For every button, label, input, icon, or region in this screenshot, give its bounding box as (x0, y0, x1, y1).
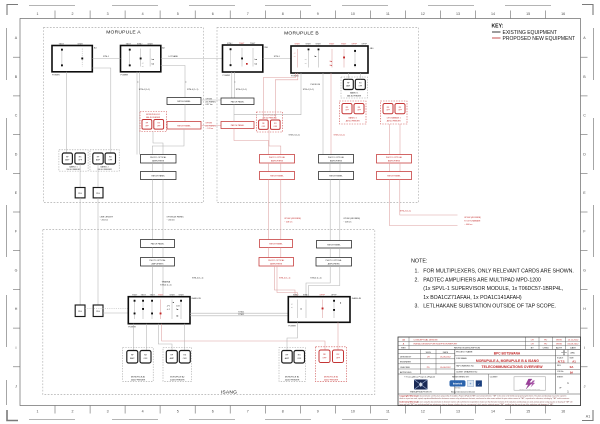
svg-text:12: 12 (421, 12, 425, 16)
svg-text:05-08-2012: 05-08-2012 (440, 357, 451, 359)
svg-text:6: 6 (212, 12, 214, 16)
svg-text:4B0: 4B0 (370, 48, 374, 50)
svg-text:PATCH PANEL: PATCH PANEL (177, 100, 191, 103)
svg-text:J: J (15, 385, 17, 389)
svg-text:C: C (15, 114, 18, 118)
svg-text:+↓: +↓ (291, 306, 293, 309)
svg-text:E: E (583, 191, 586, 195)
svg-text:3: 3 (107, 12, 109, 16)
svg-text:13: 13 (456, 410, 460, 414)
svg-text:DATE: DATE (570, 347, 576, 350)
svg-text:11: 11 (386, 410, 390, 414)
svg-text:10: 10 (351, 410, 355, 414)
svg-text:PATCH PANEL: PATCH PANEL (327, 244, 341, 247)
svg-text:11: 11 (386, 12, 390, 16)
svg-text:DESIGN BY: DESIGN BY (400, 357, 412, 359)
svg-text:BANKO 2: BANKO 2 (100, 165, 108, 168)
svg-text:AMPLIFIERS: AMPLIFIERS (328, 262, 341, 265)
svg-text:05-08-2012: 05-08-2012 (440, 367, 451, 369)
svg-text:MORUPULE B: MORUPULE B (284, 31, 319, 37)
svg-text:8: 8 (282, 12, 284, 16)
svg-text:LETLHAKANE SUBSTATION OUTSIDE: LETLHAKANE SUBSTATION OUTSIDE OF TAP SCO… (423, 303, 556, 309)
svg-text:PLE: PLE (96, 311, 100, 313)
svg-text:POWER: POWER (52, 75, 60, 77)
svg-text:Moody International Certificat: Moody International Certification (451, 390, 475, 393)
svg-text:ISANG 2B: ISANG 2B (192, 297, 202, 300)
svg-text:Indemnity Warning: Indemnity Warning (400, 401, 419, 404)
svg-text:BPC BOTSWANA: BPC BOTSWANA (494, 351, 521, 355)
svg-text:+↓: +↓ (142, 65, 144, 68)
svg-text:STM#: STM# (303, 294, 309, 296)
svg-text:STM-4 (1+1): STM-4 (1+1) (187, 89, 199, 91)
svg-text:7: 7 (247, 410, 249, 414)
svg-text:8: 8 (282, 410, 284, 414)
svg-text:THABWA: THABWA (162, 281, 171, 284)
svg-text:E: E (15, 191, 18, 195)
svg-text:B: B (15, 75, 18, 79)
svg-text:PD: PD (544, 344, 547, 346)
svg-text:STM#: STM# (227, 43, 233, 45)
svg-text:AMP: AMP (65, 159, 70, 162)
svg-text:DATE: DATE (443, 351, 449, 354)
svg-text:+↓: +↓ (305, 62, 307, 65)
svg-text:NOTE:: NOTE: (411, 259, 427, 265)
svg-text:MORUPULE B1: MORUPULE B1 (285, 377, 300, 379)
svg-text:PD: PD (544, 339, 547, 341)
svg-text:(MM): (MM) (570, 352, 575, 354)
svg-text:J: J (584, 385, 586, 389)
svg-text:2: 2 (72, 12, 74, 16)
svg-text:+↓: +↓ (305, 58, 307, 61)
svg-text:STM#: STM# (78, 43, 84, 45)
svg-text:ENGINEER: ENGINEER (400, 362, 411, 364)
svg-text:0A: 0A (570, 370, 573, 374)
svg-text:PATCH PANEL: PATCH PANEL (387, 175, 401, 178)
svg-text:200 4U FEEDER: 200 4U FEEDER (97, 169, 112, 171)
svg-text:MORUPULE A1: MORUPULE A1 (131, 376, 146, 379)
svg-text:STM-4 (1+1): STM-4 (1+1) (160, 285, 172, 287)
svg-text:LOTSANE: LOTSANE (169, 55, 179, 58)
svg-text:D: D (583, 152, 586, 156)
svg-text:JOB NAME:: JOB NAME: (456, 357, 468, 360)
svg-text:BANKO 1: BANKO 1 (69, 165, 77, 168)
svg-text:16: 16 (561, 12, 565, 16)
svg-text:BANKO 1: BANKO 1 (350, 92, 358, 95)
svg-text:AMPLIFIERS: AMPLIFIERS (152, 159, 165, 162)
svg-text:LINE LENGTH: LINE LENGTH (100, 216, 114, 218)
svg-text:9: 9 (317, 410, 319, 414)
svg-text:OPTP: OPTP (320, 294, 326, 296)
svg-text:FOR MULTIPLEXERS, ONLY RELEVAN: FOR MULTIPLEXERS, ONLY RELEVANT CARDS AR… (423, 269, 574, 275)
svg-text:STM-4 (1+1): STM-4 (1+1) (334, 134, 346, 136)
svg-text:C: C (583, 114, 586, 118)
svg-text:STM-1: STM-1 (274, 56, 281, 58)
svg-text:(36 FIBRE): (36 FIBRE) (206, 101, 216, 103)
svg-text:APPROVED: APPROVED (400, 371, 412, 374)
svg-text:14: 14 (491, 12, 495, 16)
svg-text:TSGT: TSGT (329, 44, 335, 46)
svg-text:REGISTERED BY:: REGISTERED BY: (452, 376, 470, 378)
svg-text:TRANS-AFRICA PROJECTS: TRANS-AFRICA PROJECTS (410, 390, 433, 393)
svg-text:ISO 9001: ISO 9001 (455, 388, 461, 390)
svg-text:A1: A1 (586, 415, 590, 419)
svg-text:~ 218 km: ~ 218 km (343, 221, 352, 223)
svg-text:PATCH PANEL: PATCH PANEL (177, 124, 191, 127)
svg-text:(1x SPVL-1 SUPERVISOR MODULE,: (1x SPVL-1 SUPERVISOR MODULE, 1x T06DC57… (423, 286, 563, 292)
svg-text:I: I (584, 346, 585, 350)
svg-text:REVISION DESCRIPTION: REVISION DESCRIPTION (454, 348, 480, 350)
svg-text:400kV FEEDER: 400kV FEEDER (131, 380, 146, 382)
svg-text:5: 5 (177, 12, 179, 16)
svg-text:TSGT: TSGT (132, 294, 138, 296)
svg-text:B: B (583, 75, 586, 79)
svg-text:PHOTO OPTICAL: PHOTO OPTICAL (326, 259, 343, 262)
svg-text:STM-4 (1+1): STM-4 (1+1) (139, 89, 151, 91)
svg-text:TO LETLHAKANE: TO LETLHAKANE (464, 219, 481, 222)
svg-text:CLIENT:: CLIENT: (490, 377, 499, 379)
svg-text:~ 400 km: ~ 400 km (464, 224, 473, 226)
svg-text:G: G (583, 268, 586, 272)
svg-text:D: D (15, 152, 18, 156)
svg-text:7: 7 (247, 12, 249, 16)
svg-text:TELECOMMUNICATIONS OVERVIEW: TELECOMMUNICATIONS OVERVIEW (482, 364, 543, 369)
svg-text:TAP DRAWING No:: TAP DRAWING No: (456, 364, 475, 367)
svg-text:STM-4 (1+1): STM-4 (1+1) (310, 278, 322, 280)
svg-text:✓: ✓ (478, 383, 480, 386)
svg-text:CHECKED: CHECKED (400, 367, 411, 369)
svg-text:WDW: WDW (556, 339, 563, 341)
svg-text:OPTP: OPTP (362, 44, 368, 46)
svg-text:POWER: POWER (288, 325, 296, 327)
svg-text:AMP: AMP (285, 357, 290, 360)
svg-text:1: 1 (37, 410, 39, 414)
svg-text:400kV FEEDER: 400kV FEEDER (170, 380, 185, 382)
svg-text:STM-4 (1+1): STM-4 (1+1) (279, 278, 291, 280)
svg-text:6: 6 (212, 410, 214, 414)
svg-text:OPGW (48 FIBRE): OPGW (48 FIBRE) (464, 217, 481, 219)
svg-text:JOB No:: JOB No: (557, 371, 564, 373)
svg-text:POWER: POWER (121, 75, 129, 77)
svg-text:PLE: PLE (96, 193, 100, 195)
svg-text:STM-1: STM-1 (238, 314, 245, 316)
svg-text:STM#: STM# (137, 43, 143, 45)
svg-text:MORUPULE A 2: MORUPULE A 2 (263, 114, 277, 117)
svg-text:POWER: POWER (223, 75, 231, 77)
svg-text:F: F (583, 230, 586, 234)
svg-text:OPGW: OPGW (206, 123, 212, 125)
svg-text:+↓: +↓ (294, 55, 296, 58)
svg-text:PATCH PANEL: PATCH PANEL (269, 243, 283, 246)
svg-text:A: A (15, 36, 18, 40)
svg-text:PLE: PLE (78, 193, 82, 195)
svg-text:AM 4U FEEDER: AM 4U FEEDER (346, 119, 361, 122)
svg-text:OPGW (48 FIBRE): OPGW (48 FIBRE) (284, 218, 301, 220)
svg-text:CHKD: CHKD (543, 348, 550, 350)
svg-text:9: 9 (317, 12, 319, 16)
svg-text:PHOTO OPTICAL: PHOTO OPTICAL (149, 259, 166, 262)
svg-text:PLE: PLE (78, 311, 82, 313)
svg-text:MORUPULE B 1: MORUPULE B 1 (146, 114, 160, 116)
svg-text:TSGT: TSGT (59, 43, 65, 45)
svg-text:STM#: STM# (179, 294, 185, 296)
svg-text:MORUPULE A2: MORUPULE A2 (170, 376, 185, 379)
svg-text:TSGT: TSGT (150, 294, 156, 296)
svg-text:MORUPULE B2: MORUPULE B2 (324, 377, 339, 379)
svg-text:PATCH PANEL: PATCH PANEL (270, 175, 284, 178)
svg-text:STM#: STM# (148, 43, 154, 45)
svg-text:AMP: AMP (170, 357, 175, 360)
svg-text:OPTP: OPTP (352, 44, 358, 46)
svg-text:1x BOA1CZ71AFAH, 1x POA1C141AF: 1x BOA1CZ71AFAH, 1x POA1C141AFAH) (423, 295, 522, 301)
svg-text:MORUPULE A, MORUPULE B & ISANG: MORUPULE A, MORUPULE B & ISANG (476, 358, 539, 363)
svg-text:A1: A1 (572, 359, 576, 363)
svg-text:AMPLIFIERS: AMPLIFIERS (271, 159, 284, 162)
svg-text:STM-4 (1+1): STM-4 (1+1) (303, 89, 315, 91)
svg-text:13: 13 (456, 12, 460, 16)
svg-text:TSGT: TSGT (141, 294, 147, 296)
svg-text:PATCH PANEL: PATCH PANEL (151, 175, 165, 178)
svg-text:AMP: AMP (130, 357, 135, 360)
svg-text:G: G (15, 268, 18, 272)
svg-text:ISANG 4B: ISANG 4B (352, 297, 362, 300)
svg-text:5: 5 (177, 410, 179, 414)
svg-text:PROPOSED NEW EQUIPMENT: PROPOSED NEW EQUIPMENT (503, 36, 576, 42)
svg-text:PHOTO OPTICAL: PHOTO OPTICAL (150, 156, 167, 159)
svg-text:TSGT: TSGT (239, 43, 245, 45)
svg-text:✈: ✈ (470, 383, 472, 386)
svg-text:LH: LH (531, 339, 534, 341)
svg-text:ISANG: ISANG (221, 390, 237, 396)
svg-text:AUTH: AUTH (556, 347, 562, 350)
svg-text:LH: LH (531, 344, 534, 346)
svg-text:+↓: +↓ (142, 62, 144, 65)
svg-text:4: 4 (142, 410, 144, 414)
svg-text:OPTP: OPTP (331, 294, 337, 296)
svg-text:A3: A3 (94, 47, 97, 50)
svg-text:10: 10 (351, 12, 355, 16)
svg-text:A2: A2 (162, 47, 165, 50)
svg-text:CONCEPTUAL DESIGN: CONCEPTUAL DESIGN (414, 338, 438, 341)
svg-text:PHOTO OPTICAL: PHOTO OPTICAL (269, 156, 286, 159)
svg-text:1.: 1. (415, 269, 419, 275)
svg-text:CLIENT DRAWING No:: CLIENT DRAWING No: (456, 371, 478, 374)
svg-text:~ 200 km: ~ 200 km (167, 220, 176, 222)
svg-text:MORUPULE A: MORUPULE A (106, 30, 141, 36)
svg-text:AMPLIFIERS: AMPLIFIERS (270, 262, 283, 265)
svg-text:~ 218 km: ~ 218 km (284, 221, 293, 223)
svg-text:STM-4 (1+1): STM-4 (1+1) (289, 134, 301, 136)
svg-text:16: 16 (561, 410, 565, 414)
svg-text:STM#: STM# (293, 294, 299, 296)
svg-text:PATCH PANEL: PATCH PANEL (151, 243, 165, 246)
svg-text:STM-1: STM-1 (238, 311, 245, 313)
svg-text:14.11.2012: 14.11.2012 (568, 339, 580, 341)
svg-text:PHOTO OPTICAL: PHOTO OPTICAL (386, 156, 403, 159)
svg-text:200 4U FEEDER: 200 4U FEEDER (66, 169, 81, 171)
svg-text:1: 1 (37, 12, 39, 16)
svg-text:PHOTO OPTICAL: PHOTO OPTICAL (328, 156, 345, 159)
svg-text:STM#: STM# (316, 44, 322, 46)
svg-text:~ 200 km: ~ 200 km (100, 220, 109, 222)
svg-text:WDW: WDW (556, 344, 563, 346)
svg-text:AMPLIFIERS: AMPLIFIERS (330, 159, 343, 162)
svg-text:400kV FEEDER: 400kV FEEDER (324, 380, 339, 382)
svg-text:TSGT: TSGT (158, 294, 164, 296)
svg-text:STM-1: STM-1 (103, 56, 110, 58)
svg-text:TSGT: TSGT (250, 43, 256, 45)
svg-text:400kV FEEDER: 400kV FEEDER (285, 380, 300, 382)
svg-text:2.: 2. (415, 277, 419, 283)
svg-text:STM-4 (1+1): STM-4 (1+1) (400, 211, 412, 213)
svg-text:SIGN: SIGN (426, 352, 432, 354)
svg-text:INITIAL DESIGN FOR INCEPTION R: INITIAL DESIGN FOR INCEPTION REPORT (414, 343, 458, 346)
svg-text:KEY:: KEY: (492, 23, 504, 29)
svg-text:3.: 3. (415, 303, 419, 309)
svg-text:15: 15 (526, 12, 530, 16)
svg-text:H: H (583, 307, 586, 311)
svg-text:TSGT: TSGT (341, 44, 347, 46)
svg-text:STM#: STM# (295, 44, 301, 46)
svg-text:STM#: STM# (306, 44, 312, 46)
svg-text:AMPLIFIERS: AMPLIFIERS (152, 262, 165, 265)
svg-text:3: 3 (107, 410, 109, 414)
svg-text:05.08.2012: 05.08.2012 (568, 344, 580, 346)
svg-text:PHOKOJE: PHOKOJE (311, 84, 321, 86)
svg-text:AM 4U FEEDER: AM 4U FEEDER (146, 116, 161, 119)
svg-text:PATCH PANEL: PATCH PANEL (329, 175, 343, 178)
svg-text:REV: REV (401, 348, 406, 350)
svg-text:OPGW (48 FIBRE): OPGW (48 FIBRE) (167, 216, 184, 218)
svg-text:2: 2 (72, 410, 74, 414)
svg-text:+↓: +↓ (291, 302, 293, 305)
svg-text:SHEET:: SHEET: (557, 377, 564, 379)
svg-text:AMPLIFIERS: AMPLIFIERS (388, 159, 401, 162)
svg-text:AM 4U FEEDER: AM 4U FEEDER (347, 94, 362, 97)
svg-text:LETLHAKANE 1: LETLHAKANE 1 (387, 117, 401, 120)
svg-text:AM 4U FEEDER: AM 4U FEEDER (387, 119, 402, 122)
svg-text:STM-4 (1+1): STM-4 (1+1) (192, 278, 204, 280)
svg-text:0.87 km: 0.87 km (206, 104, 213, 106)
svg-text:A: A (583, 36, 586, 40)
svg-text:14: 14 (491, 410, 495, 414)
svg-text:F: F (15, 230, 18, 234)
svg-text:TSGT: TSGT (126, 43, 132, 45)
svg-text:PADTEC AMPLIFIERS ARE MULTIPAD: PADTEC AMPLIFIERS ARE MULTIPAD MPD-1200 (423, 277, 541, 283)
svg-text:N.T.S.: N.T.S. (558, 359, 566, 363)
svg-text:PHOTO OPTICAL: PHOTO OPTICAL (268, 259, 285, 262)
svg-text:POWER: POWER (128, 327, 136, 329)
svg-text:STM-4 (1+1): STM-4 (1+1) (236, 89, 248, 91)
svg-text:PROJECT NAME:: PROJECT NAME: (456, 351, 473, 354)
svg-text:Intertek: Intertek (453, 382, 463, 386)
svg-text:PD: PD (427, 367, 430, 369)
svg-text:OPGW (48 FIBRE): OPGW (48 FIBRE) (343, 218, 360, 220)
svg-text:15: 15 (526, 410, 530, 414)
svg-text:BANKO 2: BANKO 2 (349, 117, 357, 120)
svg-text:REV:: REV: (557, 365, 562, 367)
svg-text:LH: LH (427, 357, 430, 359)
svg-text:12: 12 (421, 410, 425, 414)
svg-text:AMP: AMP (96, 159, 101, 162)
svg-text:STM#: STM# (170, 294, 176, 296)
svg-text:2B0: 2B0 (264, 47, 268, 49)
svg-text:+↓: +↓ (294, 52, 296, 55)
svg-text:I: I (16, 346, 17, 350)
svg-text:H: H (15, 307, 18, 311)
svg-text:PATCH PANEL: PATCH PANEL (231, 124, 245, 127)
svg-text:4: 4 (142, 12, 144, 16)
svg-text:~ 3.1 km: ~ 3.1 km (206, 128, 214, 130)
svg-text:PATCH PANEL: PATCH PANEL (231, 101, 245, 104)
svg-text:© Trans-Africa Projects (Pty)L: © Trans-Africa Projects (Pty)Ltd (404, 375, 436, 378)
svg-text:AM 4U FEEDER: AM 4U FEEDER (263, 116, 278, 119)
